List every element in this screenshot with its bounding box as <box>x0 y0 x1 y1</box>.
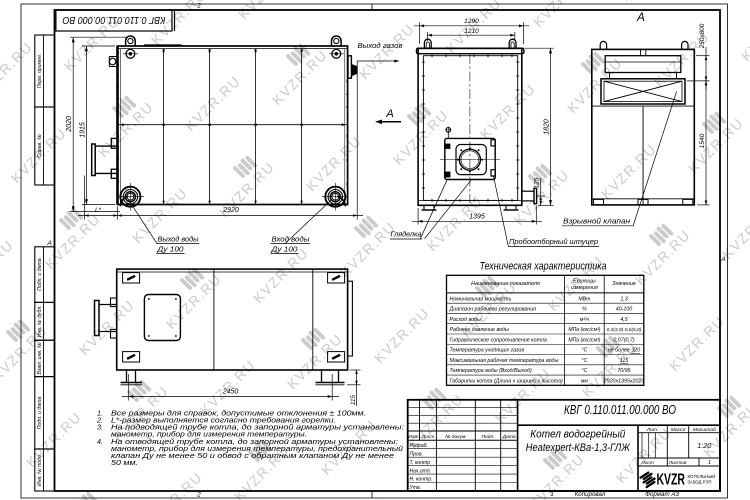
svg-text:2920х1395х2020: 2920х1395х2020 <box>603 378 645 384</box>
svg-text:А: А <box>636 12 645 24</box>
svg-text:Вход воды: Вход воды <box>272 236 311 244</box>
svg-text:°С: °С <box>582 368 588 374</box>
svg-text:Разраб.: Разраб. <box>410 443 428 449</box>
svg-text:4,5: 4,5 <box>620 317 627 323</box>
svg-text:Инв. № подл.: Инв. № подл. <box>37 454 43 486</box>
svg-text:2: 2 <box>196 493 201 499</box>
svg-text:Подп. и дата: Подп. и дата <box>37 258 43 291</box>
svg-text:Подп.: Подп. <box>481 434 494 440</box>
svg-text:Номинальная мощность: Номинальная мощность <box>450 296 512 302</box>
svg-text:°С: °С <box>582 348 588 354</box>
svg-text:70/95: 70/95 <box>617 368 630 374</box>
svg-text:Диапазон рабочего регулировани: Диапазон рабочего регулирования <box>449 307 537 313</box>
svg-text:Т. контр: Т. контр <box>410 460 431 466</box>
svg-text:Единицы: Единицы <box>573 278 596 284</box>
svg-text:м³/ч: м³/ч <box>580 317 590 323</box>
svg-text:Масштаб: Масштаб <box>693 427 716 433</box>
svg-text:1210: 1210 <box>464 28 479 35</box>
svg-text:50 мм.: 50 мм. <box>111 458 138 467</box>
svg-text:250х800: 250х800 <box>699 23 706 49</box>
svg-text:Инв. № дубл.: Инв. № дубл. <box>37 305 43 337</box>
svg-text:1540: 1540 <box>699 133 706 148</box>
svg-text:1820: 1820 <box>544 119 551 135</box>
svg-text:Габариты котла (Длина х ширина: Габариты котла (Длина х ширина х высота) <box>450 378 564 384</box>
svg-text:мм: мм <box>581 378 588 384</box>
svg-text:Утв.: Утв. <box>410 485 422 491</box>
svg-text:1:20: 1:20 <box>697 441 711 450</box>
svg-text:Копировал: Копировал <box>575 491 606 498</box>
svg-text:Пров.: Пров. <box>410 451 423 457</box>
svg-text:2020: 2020 <box>66 116 73 133</box>
svg-text:Выход воды: Выход воды <box>158 236 200 244</box>
svg-text:Гидравлическое сопротивление к: Гидравлическое сопротивление котла <box>450 337 547 343</box>
svg-text:1915: 1915 <box>80 122 87 138</box>
svg-text:Рабочее давление воды: Рабочее давление воды <box>450 327 509 333</box>
svg-text:А: А <box>720 256 725 263</box>
svg-text:Гляделка: Гляделка <box>391 230 422 239</box>
svg-text:клапан Ду не менее 50 и обвод: клапан Ду не менее 50 и обвод с обратным… <box>111 451 394 460</box>
svg-text:KVZR: KVZR <box>657 472 686 489</box>
svg-text:1: 1 <box>708 460 711 466</box>
svg-text:Расход воды: Расход воды <box>450 317 481 323</box>
svg-text:Взрывной клапан: Взрывной клапан <box>563 217 630 226</box>
svg-text:МВт: МВт <box>578 296 590 302</box>
svg-text:Изм.: Изм. <box>408 434 418 440</box>
svg-text:Лист: Лист <box>421 434 435 440</box>
svg-text:Пробоотборный штуцер: Пробоотборный штуцер <box>509 237 598 246</box>
svg-text:Формат А3: Формат А3 <box>645 491 679 498</box>
svg-text:А: А <box>46 240 51 247</box>
svg-text:МПа (кгс/см²): МПа (кгс/см²) <box>568 337 600 343</box>
svg-text:Масса: Масса <box>671 427 686 433</box>
svg-text:Подп. и дата: Подп. и дата <box>37 397 43 430</box>
svg-text:115: 115 <box>350 394 357 405</box>
svg-text:КВГ 0.110.011.00.000 ВО: КВГ 0.110.011.00.000 ВО <box>62 14 165 25</box>
svg-text:Листов: Листов <box>668 460 687 466</box>
svg-text:Ду 100: Ду 100 <box>156 246 183 253</box>
svg-text:Котел водогрейный: Котел водогрейный <box>530 429 625 441</box>
svg-text:не более 320: не более 320 <box>608 348 640 354</box>
svg-text:№ докум.: № докум. <box>445 434 467 440</box>
svg-text:%: % <box>582 307 587 313</box>
svg-text:L*: L* <box>95 207 102 214</box>
svg-text:Н. контр.: Н. контр. <box>410 477 433 483</box>
svg-text:Дата: Дата <box>502 434 516 440</box>
svg-text:ЗАВОД РЭП: ЗАВОД РЭП <box>688 479 712 484</box>
svg-text:МПа (кгс/см²): МПа (кгс/см²) <box>568 327 600 333</box>
svg-text:2: 2 <box>196 4 201 10</box>
svg-text:КВГ 0.110.011.00.000 ВО: КВГ 0.110.011.00.000 ВО <box>564 402 676 417</box>
svg-text:1290: 1290 <box>464 18 479 25</box>
svg-text:Взам. инв. №: Взам. инв. № <box>37 342 43 374</box>
svg-text:Лист: Лист <box>640 460 654 466</box>
svg-text:Температура воды (Вход/Выход): Температура воды (Вход/Выход) <box>450 368 532 374</box>
svg-text:Перв. примен.: Перв. примен. <box>37 54 43 88</box>
svg-text:3.: 3. <box>97 423 103 432</box>
svg-text:Выход газов: Выход газов <box>358 41 403 50</box>
svg-text:0,07(0,7): 0,07(0,7) <box>613 337 634 343</box>
svg-text:115: 115 <box>620 358 628 364</box>
svg-text:4.: 4. <box>97 437 103 446</box>
svg-text:40-100: 40-100 <box>616 307 633 313</box>
svg-text:2920: 2920 <box>222 207 239 214</box>
svg-text:Ду 100: Ду 100 <box>270 246 297 253</box>
svg-text:Heatexpert-КВа-1,3-ГЛЖ: Heatexpert-КВа-1,3-ГЛЖ <box>526 442 631 454</box>
svg-text:°С: °С <box>582 358 588 364</box>
svg-text:Максимальная рабочая температу: Максимальная рабочая температура воды <box>450 358 559 364</box>
svg-text:КОТЕЛЬНЫЙ: КОТЕЛЬНЫЙ <box>688 472 716 479</box>
svg-text:Справ. №: Справ. № <box>37 134 43 158</box>
svg-text:Температура уходящих газов: Температура уходящих газов <box>450 348 525 354</box>
svg-text:0,3(3,0)-0,6(6,0): 0,3(3,0)-0,6(6,0) <box>607 327 642 333</box>
svg-text:2450: 2450 <box>222 389 239 396</box>
svg-text:125: 125 <box>534 177 541 188</box>
svg-text:Наименование показателя: Наименование показателя <box>471 281 540 287</box>
svg-text:1395: 1395 <box>469 214 485 221</box>
svg-text:Лит.: Лит. <box>646 427 658 433</box>
svg-text:измерения: измерения <box>571 285 598 291</box>
svg-text:1,3: 1,3 <box>620 296 627 302</box>
svg-text:Нач.отд.: Нач.отд. <box>410 468 431 474</box>
svg-text:1: 1 <box>550 492 553 498</box>
svg-text:Значение: Значение <box>612 281 636 287</box>
svg-text:А: А <box>385 108 393 120</box>
svg-text:Техническая характеристика: Техническая характеристика <box>480 260 607 272</box>
